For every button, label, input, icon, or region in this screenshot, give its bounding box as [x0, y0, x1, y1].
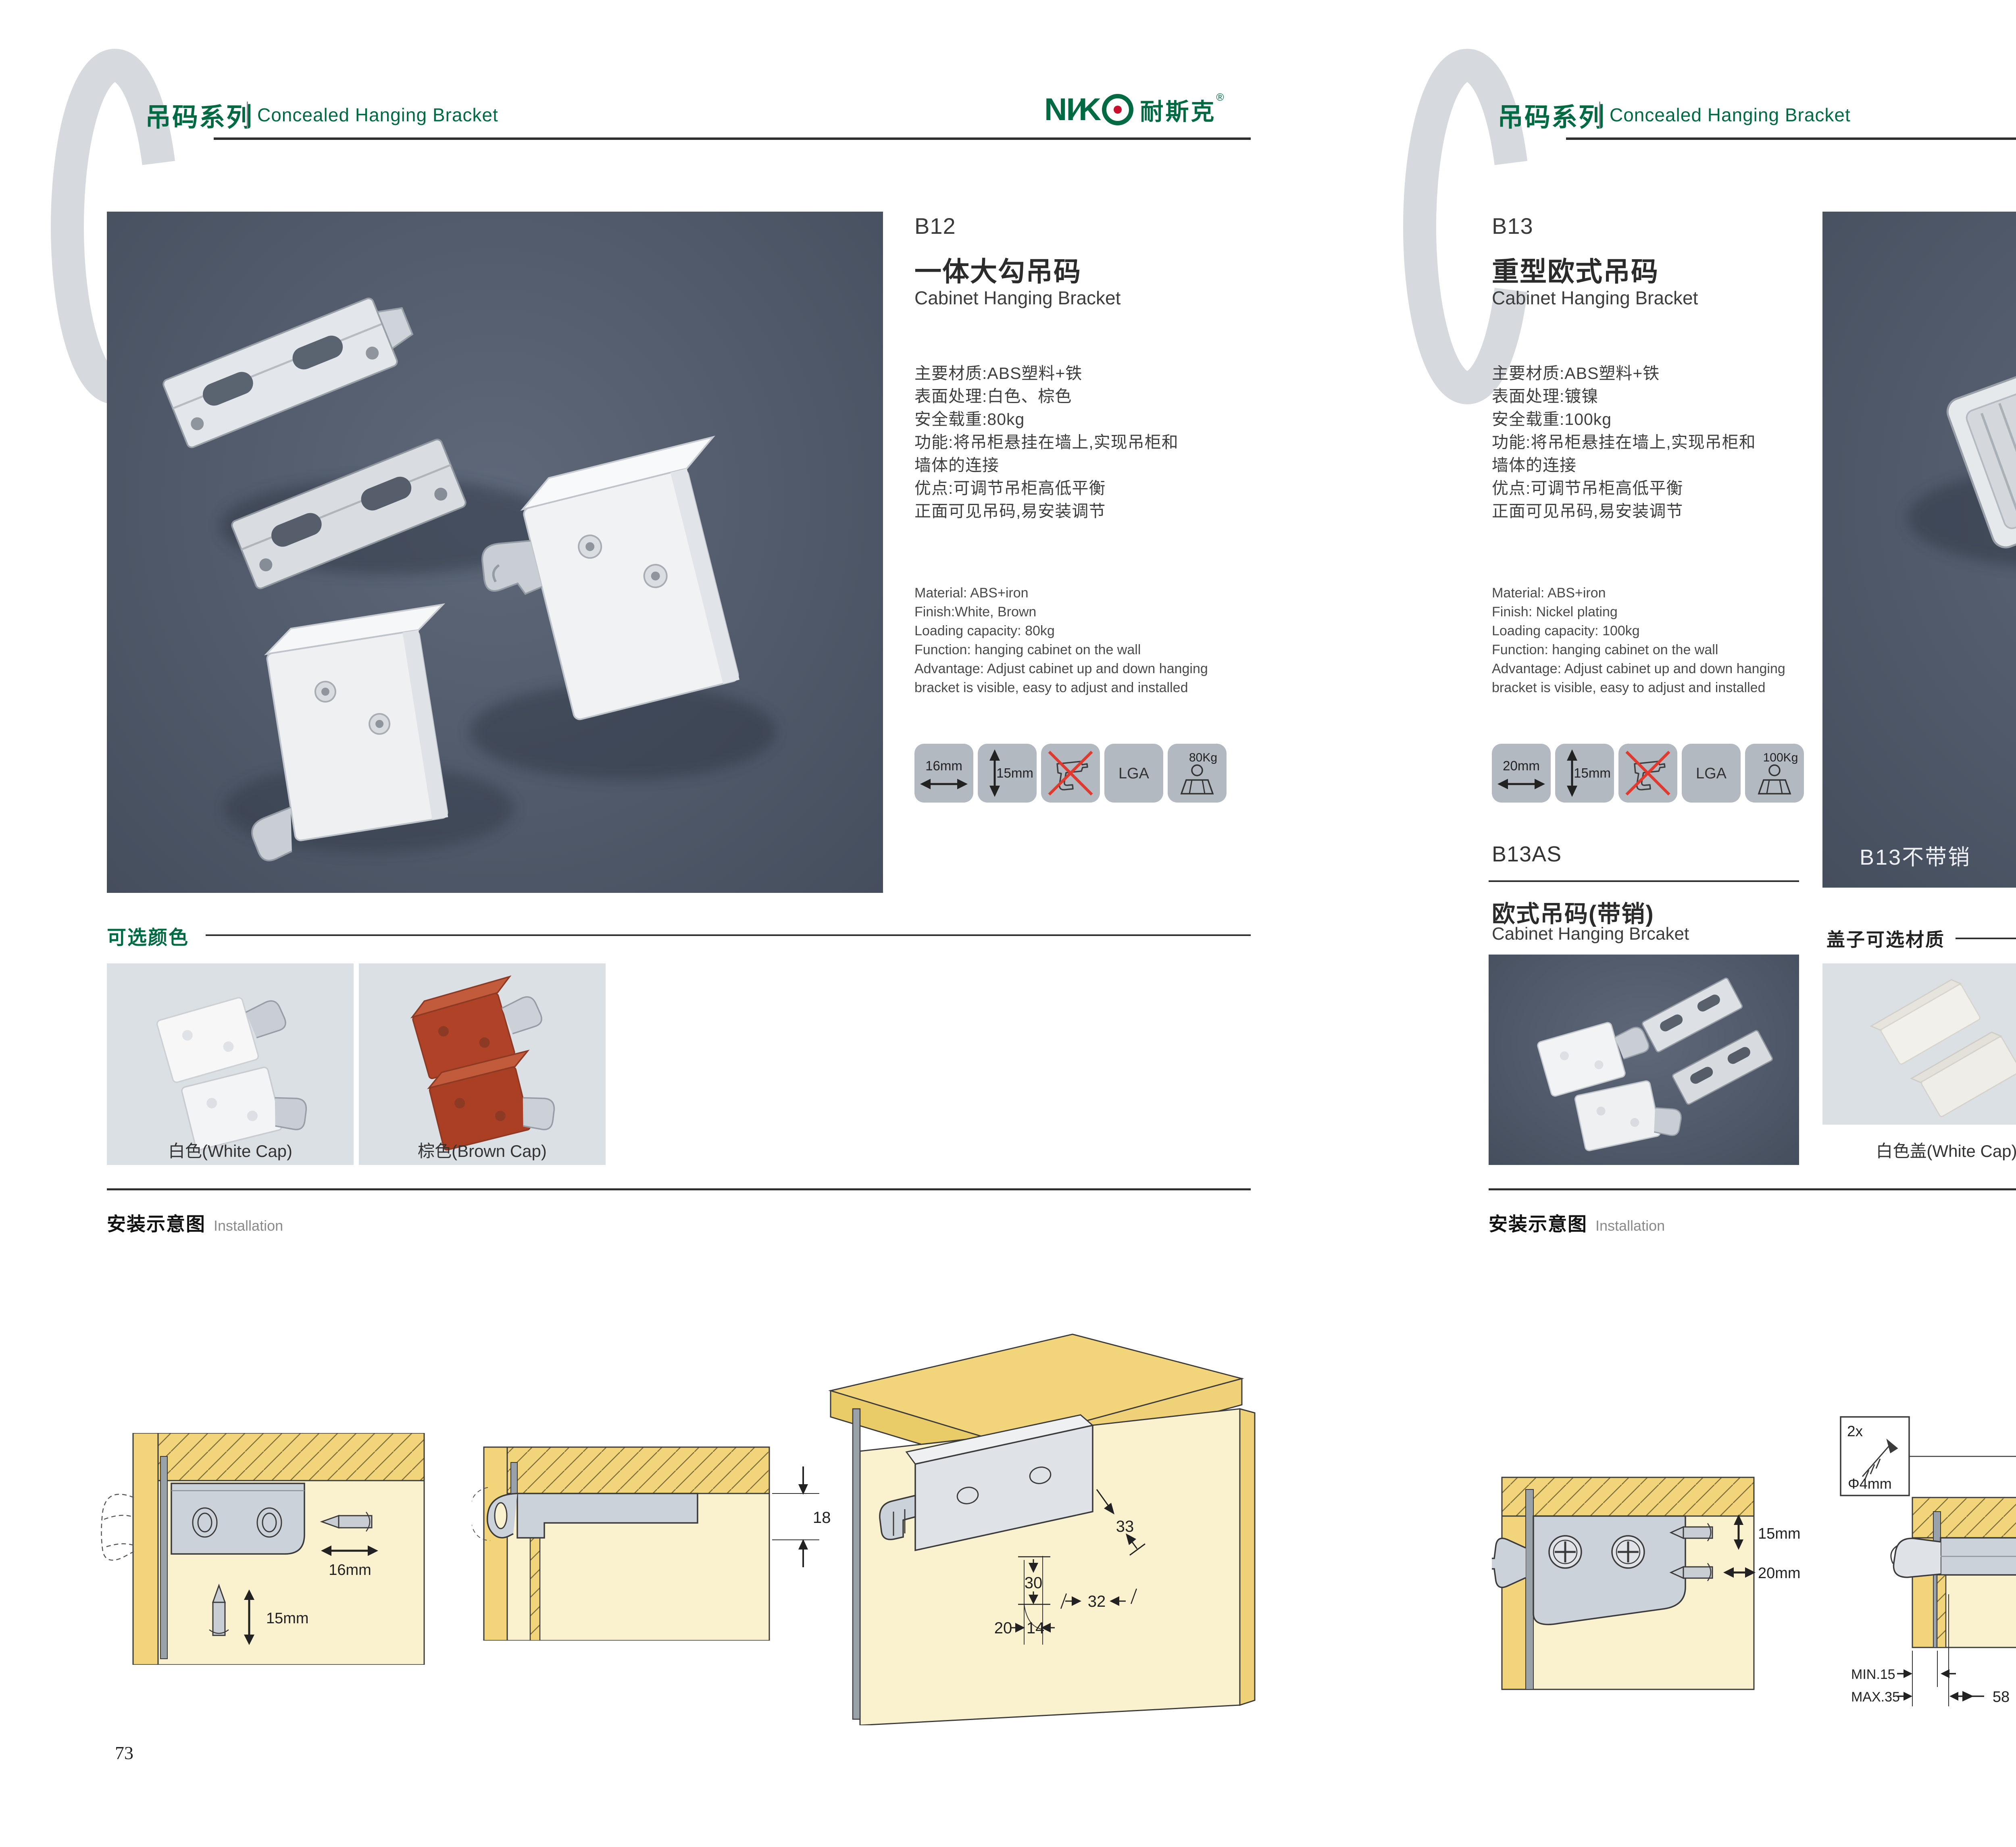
- swatch-brown-cap: [359, 963, 606, 1165]
- b12-code: B12: [914, 213, 956, 239]
- height-icon: 15mm: [978, 744, 1037, 803]
- b13-specs-en: Material: ABS+iron Finish: Nickel platin…: [1492, 584, 1785, 697]
- series-divider: [1599, 102, 1600, 128]
- b13-code: B13: [1492, 213, 1533, 239]
- load-capacity-icon: 100Kg: [1745, 744, 1804, 803]
- svg-text:2x: 2x: [1847, 1423, 1863, 1439]
- spec-line: Finish: Nickel plating: [1492, 603, 1785, 622]
- spec-line: Advantage: Adjust cabinet up and down ha…: [914, 659, 1208, 678]
- b12-product-photo: [107, 212, 883, 893]
- install-title-cn: 安装示意图: [107, 1208, 206, 1236]
- svg-text:30: 30: [1025, 1574, 1043, 1592]
- b12-icon-row: 16mm 15mm LGA 80Kg: [914, 744, 1227, 803]
- svg-text:16mm: 16mm: [925, 758, 962, 773]
- swatch-white-caption: 白色(White Cap): [107, 1138, 354, 1162]
- svg-text:15mm: 15mm: [1758, 1525, 1801, 1542]
- svg-text:15mm: 15mm: [996, 765, 1033, 780]
- b13as-name-en: Cabinet Hanging Brcaket: [1492, 924, 1689, 944]
- white-bracket-illustration: [107, 963, 354, 1165]
- svg-text:32: 32: [1088, 1593, 1106, 1610]
- spec-line: Function: hanging cabinet on the wall: [914, 641, 1208, 659]
- spec-line: 主要材质:ABS塑料+铁: [1492, 362, 1756, 385]
- lga-cert-icon: LGA: [1682, 744, 1741, 803]
- svg-text:20mm: 20mm: [1758, 1565, 1801, 1582]
- white-cap-illustration: [1822, 963, 2016, 1125]
- series-title-cn: 吊码系列: [1497, 97, 1606, 134]
- svg-text:Φ4mm: Φ4mm: [1848, 1475, 1892, 1492]
- install-title-right: 安装示意图 Installation: [1489, 1208, 1665, 1236]
- spec-line: 功能:将吊柜悬挂在墙上,实现吊柜和: [914, 431, 1179, 454]
- b12-install-diagram-section: 18: [472, 1415, 839, 1641]
- catalog-spread: 吊码系列 Concealed Hanging Bracket NI∕K 耐斯克 …: [0, 0, 2016, 1847]
- brand-ni: NI: [1044, 91, 1074, 128]
- b13as-code: B13AS: [1492, 842, 1562, 867]
- no-drill-icon: [1041, 744, 1100, 803]
- b12-install-diagram-front: 16mm 15mm: [97, 1433, 460, 1665]
- b13as-illustration: [1489, 955, 1799, 1165]
- width-icon: 20mm: [1492, 744, 1551, 803]
- b13-name-en: Cabinet Hanging Bracket: [1492, 287, 1698, 309]
- spec-line: Loading capacity: 80kg: [914, 622, 1208, 641]
- spec-line: 墙体的连接: [914, 454, 1179, 477]
- b13-product-illustration: [1822, 212, 2016, 888]
- caps-section-title: 盖子可选材质: [1826, 925, 1945, 952]
- install-rule-right: [1489, 1188, 2016, 1190]
- b12-product-illustration: [107, 212, 883, 893]
- spec-line: Loading capacity: 100kg: [1492, 622, 1785, 641]
- b13as-product-photo: [1489, 955, 1799, 1165]
- brand-registered-mark: ®: [1216, 91, 1224, 104]
- colors-section-title: 可选颜色: [107, 921, 189, 950]
- swatch-white-cover: [1822, 963, 2016, 1125]
- svg-text:14: 14: [1027, 1619, 1045, 1637]
- spec-line: bracket is visible, easy to adjust and i…: [914, 678, 1208, 697]
- colors-section-rule: [206, 934, 1251, 936]
- b12-specs-en: Material: ABS+iron Finish:White, Brown L…: [914, 584, 1208, 697]
- series-title-en: Concealed Hanging Bracket: [257, 104, 498, 126]
- svg-text:33: 33: [1116, 1518, 1134, 1535]
- svg-text:LGA: LGA: [1696, 765, 1727, 782]
- b13-install-diagram-section: 2x Φ4mm: [1837, 1369, 2016, 1731]
- no-drill-icon: [1618, 744, 1677, 803]
- svg-text:20: 20: [994, 1619, 1012, 1637]
- spec-line: 功能:将吊柜悬挂在墙上,实现吊柜和: [1492, 431, 1756, 454]
- spec-line: bracket is visible, easy to adjust and i…: [1492, 678, 1785, 697]
- caps-section-rule: [1956, 938, 2016, 939]
- brand-slash: ∕: [1074, 91, 1079, 128]
- svg-text:80Kg: 80Kg: [1189, 751, 1217, 764]
- spec-line: Material: ABS+iron: [1492, 584, 1785, 603]
- width-icon: 16mm: [914, 744, 973, 803]
- svg-text:20mm: 20mm: [1503, 758, 1540, 773]
- svg-text:LGA: LGA: [1118, 765, 1150, 782]
- spec-line: 安全载重:100kg: [1492, 408, 1756, 431]
- install-title-en: Installation: [1595, 1217, 1665, 1234]
- b12-install-diagram-3d: 33 30 32 20: [814, 1322, 1258, 1725]
- spec-line: 表面处理:镀镍: [1492, 385, 1756, 408]
- b13-specs-cn: 主要材质:ABS塑料+铁 表面处理:镀镍 安全载重:100kg 功能:将吊柜悬挂…: [1492, 362, 1756, 523]
- spec-line: 优点:可调节吊柜高低平衡: [914, 477, 1179, 500]
- spec-line: Material: ABS+iron: [914, 584, 1208, 603]
- brand-logo: NI∕K 耐斯克 ®: [1044, 91, 1224, 128]
- spec-line: Function: hanging cabinet on the wall: [1492, 641, 1785, 659]
- svg-text:15mm: 15mm: [1574, 765, 1611, 780]
- swatch-white-cap: [107, 963, 354, 1165]
- b13-product-photo: [1822, 212, 2016, 888]
- swatch-white-cover-caption: 白色盖(White Cap): [1822, 1138, 2016, 1162]
- svg-text:MIN.15: MIN.15: [1851, 1667, 1895, 1682]
- spec-line: 表面处理:白色、棕色: [914, 385, 1179, 408]
- svg-text:100Kg: 100Kg: [1763, 751, 1798, 764]
- b13-icon-row: 20mm 15mm LGA 100Kg: [1492, 744, 1804, 803]
- series-divider: [247, 102, 248, 128]
- spec-line: Finish:White, Brown: [914, 603, 1208, 622]
- height-icon: 15mm: [1555, 744, 1614, 803]
- series-title-cn: 吊码系列: [145, 97, 253, 134]
- spec-line: 正面可见吊码,易安装调节: [1492, 500, 1756, 523]
- spec-line: Advantage: Adjust cabinet up and down ha…: [1492, 659, 1785, 678]
- b13-photo-label: B13不带销: [1860, 839, 1971, 871]
- spec-line: 主要材质:ABS塑料+铁: [914, 362, 1179, 385]
- install-title-en: Installation: [214, 1217, 283, 1234]
- header-rule-right: [1566, 137, 2016, 140]
- page-number-left: 73: [115, 1742, 133, 1764]
- spec-line: 正面可见吊码,易安装调节: [914, 500, 1179, 523]
- brand-red-dot-icon: [1114, 106, 1122, 114]
- b13-name-cn: 重型欧式吊码: [1492, 250, 1659, 289]
- b13-install-diagram-front: 15mm 20mm: [1492, 1429, 1822, 1697]
- install-title-left: 安装示意图 Installation: [107, 1208, 283, 1236]
- load-capacity-icon: 80Kg: [1168, 744, 1227, 803]
- brand-cn: 耐斯克: [1140, 93, 1216, 127]
- brown-bracket-illustration: [359, 963, 606, 1165]
- lga-cert-icon: LGA: [1104, 744, 1163, 803]
- spec-line: 优点:可调节吊柜高低平衡: [1492, 477, 1756, 500]
- series-title-en: Concealed Hanging Bracket: [1610, 104, 1851, 126]
- svg-text:MAX.35: MAX.35: [1851, 1689, 1900, 1705]
- svg-text:16mm: 16mm: [329, 1562, 371, 1579]
- b12-name-en: Cabinet Hanging Bracket: [914, 287, 1120, 309]
- install-rule-left: [107, 1188, 1251, 1190]
- install-title-cn: 安装示意图: [1489, 1208, 1587, 1236]
- spec-line: 安全载重:80kg: [914, 408, 1179, 431]
- brand-k: K: [1079, 91, 1100, 128]
- svg-text:15mm: 15mm: [266, 1610, 309, 1627]
- svg-text:58: 58: [1993, 1689, 2010, 1706]
- b13as-rule: [1489, 880, 1799, 882]
- b12-name-cn: 一体大勾吊码: [914, 250, 1081, 289]
- brand-o-icon: [1102, 94, 1133, 125]
- spec-line: 墙体的连接: [1492, 454, 1756, 477]
- swatch-brown-caption: 棕色(Brown Cap): [359, 1138, 606, 1162]
- header-rule-left: [214, 137, 1251, 140]
- b12-specs-cn: 主要材质:ABS塑料+铁 表面处理:白色、棕色 安全载重:80kg 功能:将吊柜…: [914, 362, 1179, 523]
